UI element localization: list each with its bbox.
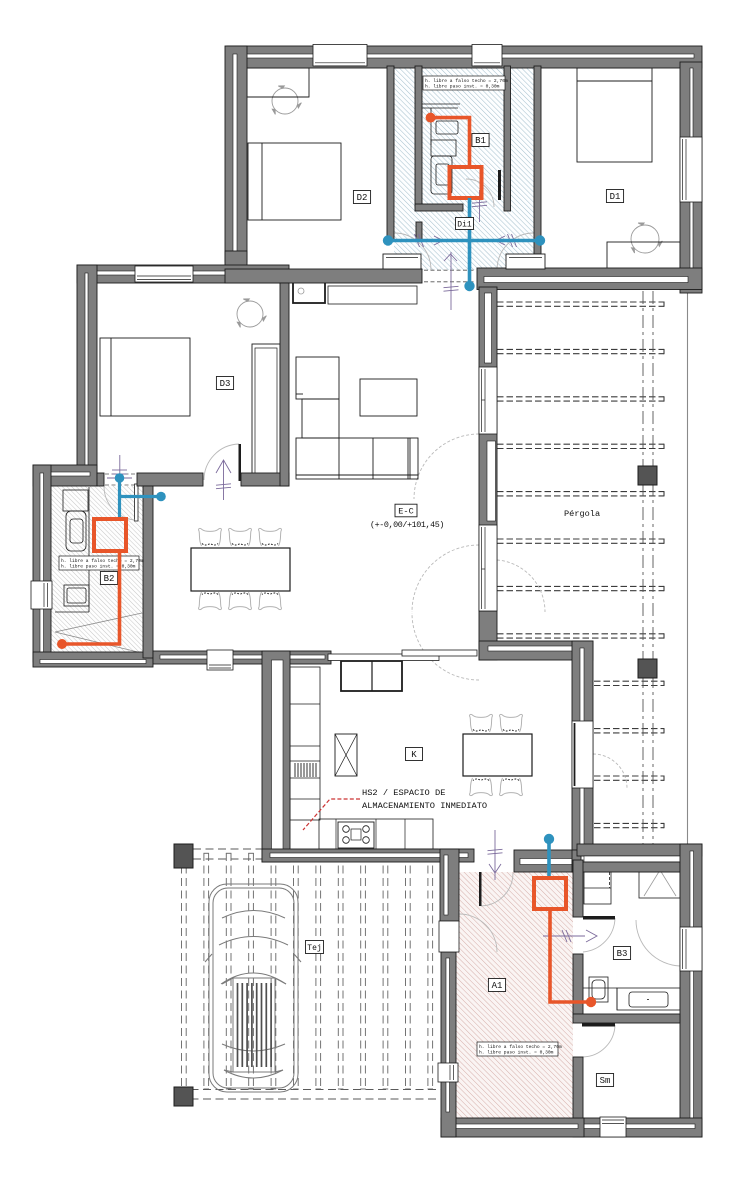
- svg-text:Tej: Tej: [307, 944, 321, 953]
- svg-text:D2: D2: [357, 193, 368, 203]
- svg-text:D3: D3: [220, 379, 231, 389]
- svg-text:h. libre paso inst. = 0,30m: h. libre paso inst. = 0,30m: [61, 564, 136, 570]
- svg-text:B2: B2: [104, 574, 115, 584]
- svg-text:h. libre paso inst. = 0,30m: h. libre paso inst. = 0,30m: [425, 84, 500, 90]
- svg-text:ALMACENAMIENTO INMEDIATO: ALMACENAMIENTO INMEDIATO: [362, 801, 487, 811]
- svg-text:B3: B3: [617, 949, 628, 959]
- svg-text:B1: B1: [475, 136, 486, 146]
- svg-text:(+-0,00/+101,45): (+-0,00/+101,45): [370, 520, 444, 530]
- svg-text:h. libre a falso techo = 2,70m: h. libre a falso techo = 2,70m: [425, 78, 508, 84]
- svg-text:E-C: E-C: [398, 507, 413, 517]
- svg-text:A1: A1: [492, 981, 503, 991]
- svg-text:K: K: [411, 750, 417, 760]
- svg-text:h. libre a falso techo = 2,70m: h. libre a falso techo = 2,70m: [61, 558, 144, 564]
- svg-text:D1: D1: [610, 192, 621, 202]
- svg-text:Pérgola: Pérgola: [564, 509, 600, 519]
- svg-text:Sm: Sm: [600, 1076, 611, 1086]
- svg-text:Di1: Di1: [457, 220, 472, 229]
- svg-text:h. libre paso inst. = 0,30m: h. libre paso inst. = 0,30m: [479, 1050, 554, 1056]
- svg-text:HS2 / ESPACIO DE: HS2 / ESPACIO DE: [362, 788, 445, 798]
- svg-text:h. libre a falso techo = 2,70m: h. libre a falso techo = 2,70m: [479, 1044, 562, 1050]
